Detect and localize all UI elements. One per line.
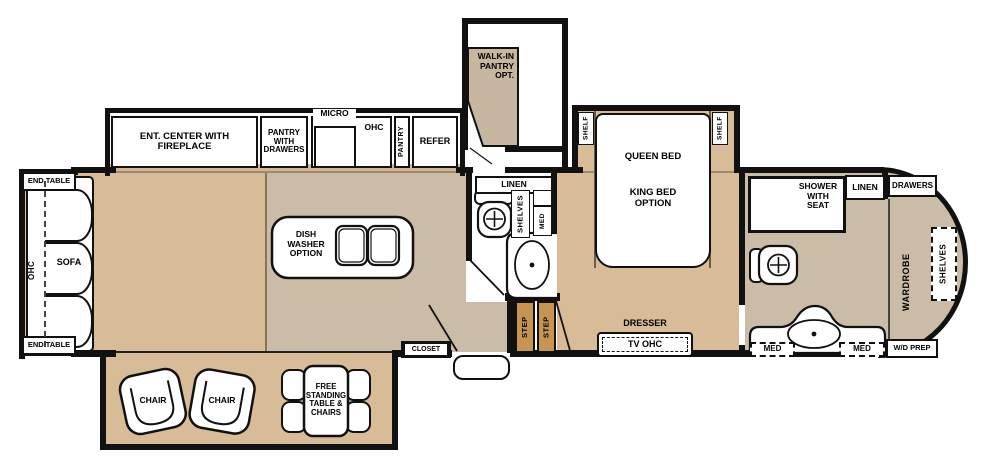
- med-left: MED: [750, 342, 795, 357]
- wardrobe-label: WARDROBE: [901, 230, 918, 335]
- pantry-wall-top: [462, 18, 568, 24]
- closet: CLOSET: [404, 343, 448, 356]
- pantry-wall-bottom: [505, 146, 565, 152]
- wd-prep: W/D PREP: [886, 339, 938, 358]
- kitchen-slideout-wall-top: [105, 108, 465, 113]
- ent-center-fireplace: ENT. CENTER WITH FIREPLACE: [111, 116, 258, 168]
- mid-bath-wall-left: [466, 171, 472, 261]
- refrigerator: REFER: [412, 116, 458, 168]
- dishwasher-island-label: DISH WASHER OPTION: [276, 230, 336, 268]
- micro-label: MICRO: [313, 109, 356, 121]
- bed-shelf-right: SHELF: [712, 112, 728, 145]
- free-standing-table-label: FREE STANDING TABLE & CHAIRS: [294, 383, 358, 423]
- rear-slideout-wall-left: [19, 169, 25, 359]
- end-table-top: END TABLE: [22, 172, 76, 191]
- kitchen-ohc-label: OHC: [356, 123, 392, 135]
- sofa-ohc-label: OHC: [28, 240, 42, 300]
- bedroom-slideout-wall-top: [572, 105, 740, 111]
- living-room-floor: [71, 171, 267, 352]
- drawers: DRAWERS: [888, 175, 937, 197]
- step-wall-top: [505, 293, 560, 301]
- pantry-with-drawers: PANTRY WITH DRAWERS: [260, 116, 308, 168]
- kitchen-pantry-tall: PANTRY: [394, 116, 410, 168]
- front-shelves: SHELVES: [931, 227, 957, 301]
- mid-bath-shelves: SHELVES: [511, 190, 530, 238]
- wardrobe-divider: [888, 199, 890, 341]
- kitchen-slideout-wall-left: [105, 108, 110, 176]
- sofa-label: SOFA: [47, 257, 91, 269]
- walk-in-pantry-label: WALK-IN PANTRY OPT.: [468, 52, 514, 92]
- mid-bath-cabinet: [533, 190, 552, 206]
- bedroom-slideout-wall-right: [734, 105, 740, 172]
- sofa-cushion: [45, 189, 93, 242]
- step-2: STEP: [537, 301, 556, 353]
- dresser-label: DRESSER: [600, 318, 690, 330]
- bed-shelf-left: SHELF: [578, 112, 594, 145]
- med-right: MED: [839, 342, 885, 357]
- chair-1-label: CHAIR: [128, 396, 178, 407]
- bed-bath-wall-upper: [739, 173, 745, 305]
- rv-floorplan: END TABLE END TABLE OHC SOFA ENT. CENTER…: [0, 0, 990, 472]
- floor-divider: [265, 173, 267, 352]
- master-linen: LINEN: [845, 175, 885, 200]
- main-wall-bottom-c: [510, 350, 882, 357]
- tv-ohc-inner: TV OHC: [602, 337, 688, 352]
- chair-2-label: CHAIR: [197, 396, 247, 407]
- tv-ohc: TV OHC: [597, 332, 693, 357]
- sofa-ohc-line: [44, 181, 46, 347]
- dinette-slideout-wall-bottom: [100, 444, 398, 450]
- queen-bed-label: QUEEN BED: [595, 152, 711, 164]
- main-wall-top-d: [734, 167, 884, 173]
- kitchen-slideout-seam: [111, 171, 461, 173]
- dinette-slideout-wall-right: [392, 350, 398, 450]
- mid-bath-med: MED: [533, 206, 552, 236]
- stove: [314, 126, 356, 168]
- shower-label: SHOWER WITH SEAT: [792, 182, 844, 226]
- dinette-slideout-seam: [106, 351, 393, 353]
- end-table-bottom: END TABLE: [22, 336, 76, 355]
- entry-step: [453, 355, 510, 380]
- step-1: STEP: [515, 301, 535, 353]
- dinette-slideout-wall-left: [100, 350, 106, 450]
- king-bed-option-label: KING BED OPTION: [595, 188, 711, 212]
